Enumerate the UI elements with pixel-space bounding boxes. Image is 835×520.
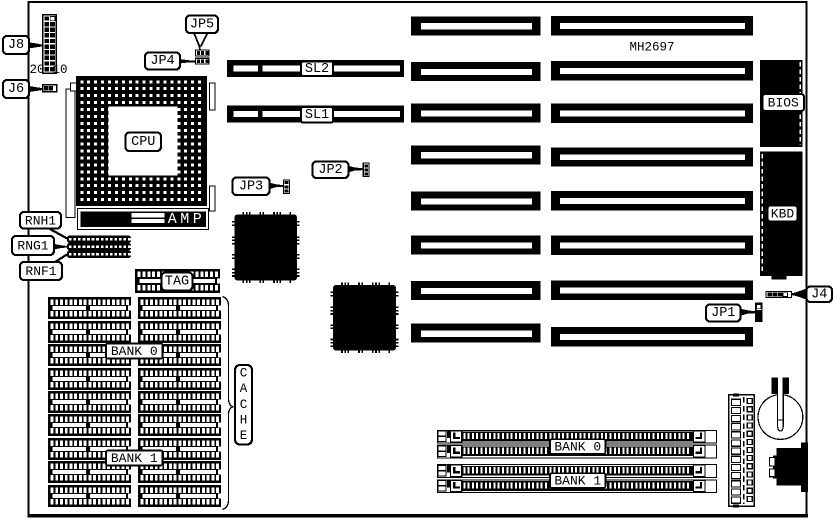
svg-text:RNH1: RNH1 [25, 213, 56, 228]
svg-text:C: C [240, 398, 248, 412]
svg-text:H: H [240, 413, 248, 427]
svg-text:E: E [240, 429, 248, 443]
svg-text:JP2: JP2 [318, 163, 342, 178]
svg-text:BANK 1: BANK 1 [554, 474, 601, 489]
svg-text:SL2: SL2 [305, 62, 329, 77]
svg-text:MH2697: MH2697 [629, 41, 674, 55]
svg-text:J4: J4 [811, 287, 827, 302]
svg-text:JP4: JP4 [150, 54, 174, 69]
svg-text:CPU: CPU [131, 135, 155, 150]
svg-text:AMP: AMP [168, 211, 206, 228]
svg-text:BIOS: BIOS [768, 96, 799, 111]
svg-text:RNF1: RNF1 [25, 264, 56, 279]
svg-text:BANK 1: BANK 1 [111, 451, 158, 466]
svg-text:TAG: TAG [165, 275, 189, 290]
svg-text:BANK 0: BANK 0 [554, 440, 601, 455]
svg-text:KBD: KBD [771, 207, 795, 222]
svg-text:20: 20 [29, 63, 44, 77]
svg-text:RNG1: RNG1 [17, 239, 48, 254]
svg-text:J8: J8 [8, 38, 24, 53]
svg-text:A: A [240, 382, 248, 396]
svg-text:BANK 0: BANK 0 [111, 344, 158, 359]
svg-text:JP1: JP1 [711, 306, 735, 321]
svg-text:J6: J6 [8, 82, 24, 97]
svg-text:JP5: JP5 [190, 17, 214, 32]
svg-text:C: C [240, 367, 248, 381]
svg-text:JP3: JP3 [239, 179, 263, 194]
svg-text:SL1: SL1 [305, 108, 329, 123]
svg-text:10: 10 [52, 63, 67, 77]
